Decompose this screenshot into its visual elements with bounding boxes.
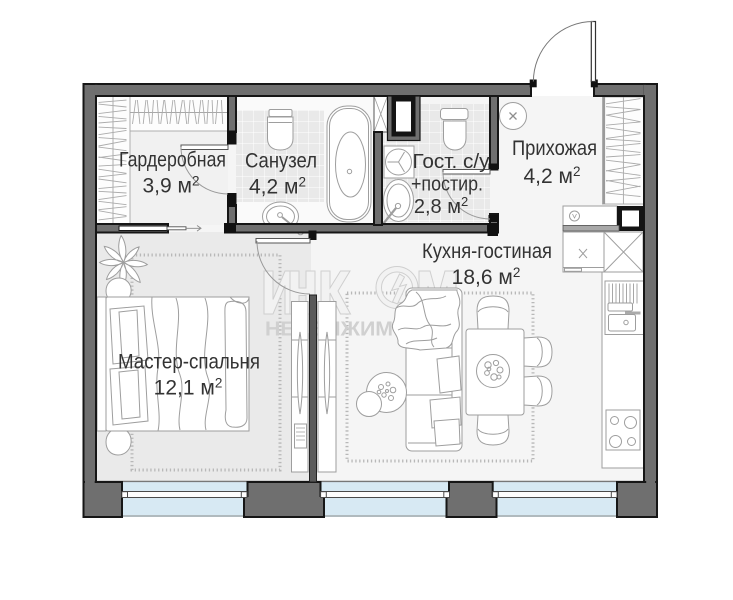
svg-text:Гост. с/у: Гост. с/у (413, 151, 490, 173)
svg-text:3,9 м2: 3,9 м2 (143, 174, 200, 198)
svg-text:4,2 м2: 4,2 м2 (524, 164, 581, 188)
svg-text:Кухня-гостиная: Кухня-гостиная (422, 240, 552, 263)
svg-text:Санузел: Санузел (245, 150, 317, 173)
svg-text:12,1 м2: 12,1 м2 (154, 376, 223, 400)
svg-text:18,6 м2: 18,6 м2 (452, 265, 521, 289)
svg-text:Гардеробная: Гардеробная (119, 149, 226, 172)
svg-text:Прихожая: Прихожая (512, 137, 597, 160)
svg-text:4,2 м2: 4,2 м2 (249, 175, 306, 199)
svg-text:+постир.: +постир. (411, 174, 483, 196)
svg-text:Мастер-спальня: Мастер-спальня (118, 351, 260, 374)
svg-text:2,8 м2: 2,8 м2 (414, 194, 468, 218)
